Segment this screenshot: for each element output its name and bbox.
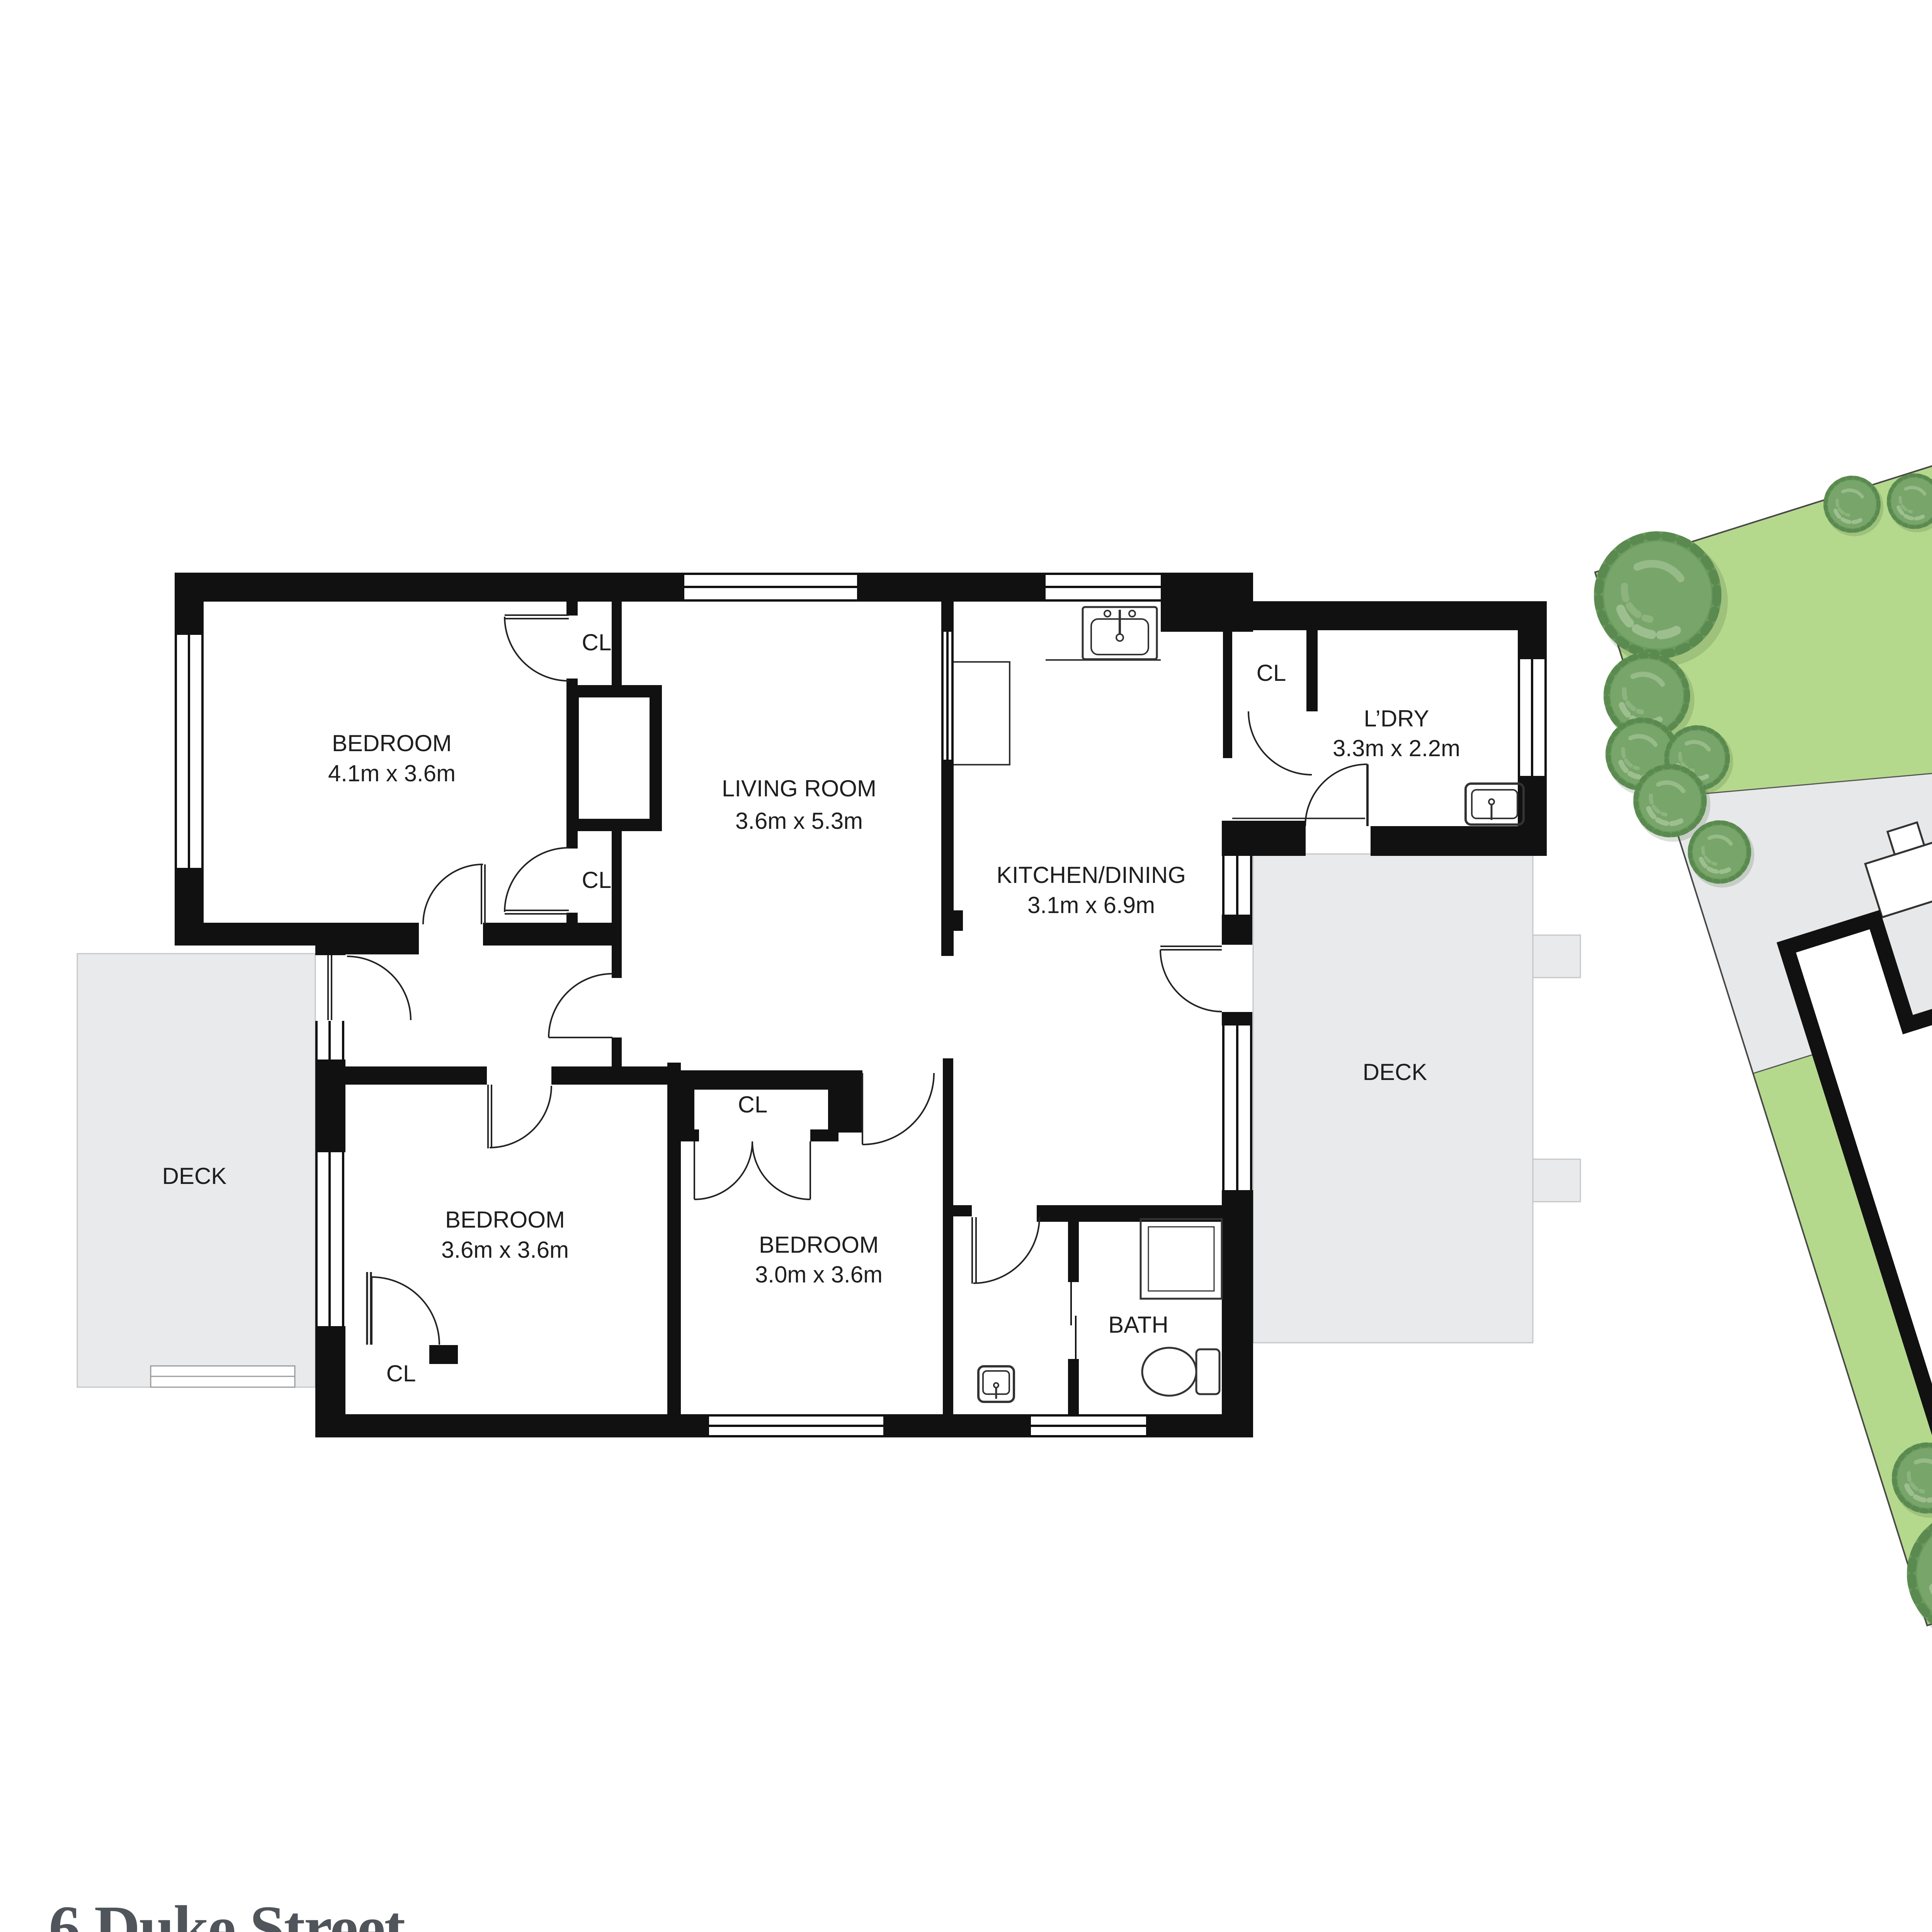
svg-text:3.6m x 5.3m: 3.6m x 5.3m bbox=[735, 808, 863, 834]
svg-text:BEDROOM: BEDROOM bbox=[332, 730, 452, 756]
svg-text:CL: CL bbox=[738, 1092, 768, 1117]
svg-text:LIVING ROOM: LIVING ROOM bbox=[722, 776, 876, 801]
svg-text:6 Duke Street: 6 Duke Street bbox=[49, 1893, 405, 1932]
svg-text:CL: CL bbox=[582, 867, 612, 893]
svg-text:CL: CL bbox=[582, 629, 612, 655]
svg-text:3.1m x 6.9m: 3.1m x 6.9m bbox=[1027, 892, 1155, 918]
svg-text:4.1m x 3.6m: 4.1m x 3.6m bbox=[328, 760, 456, 786]
svg-text:L’DRY: L’DRY bbox=[1364, 706, 1429, 731]
svg-text:3.6m x 3.6m: 3.6m x 3.6m bbox=[441, 1237, 569, 1263]
svg-text:DECK: DECK bbox=[162, 1163, 227, 1189]
svg-text:KITCHEN/DINING: KITCHEN/DINING bbox=[997, 862, 1186, 888]
svg-text:CL: CL bbox=[1257, 660, 1286, 686]
svg-text:BEDROOM: BEDROOM bbox=[445, 1207, 565, 1233]
svg-text:BATH: BATH bbox=[1108, 1312, 1168, 1338]
svg-text:DECK: DECK bbox=[1363, 1059, 1427, 1085]
svg-text:3.3m x 2.2m: 3.3m x 2.2m bbox=[1333, 735, 1460, 761]
svg-text:BEDROOM: BEDROOM bbox=[759, 1232, 879, 1258]
svg-text:3.0m x 3.6m: 3.0m x 3.6m bbox=[755, 1262, 883, 1287]
svg-text:CL: CL bbox=[386, 1361, 416, 1386]
